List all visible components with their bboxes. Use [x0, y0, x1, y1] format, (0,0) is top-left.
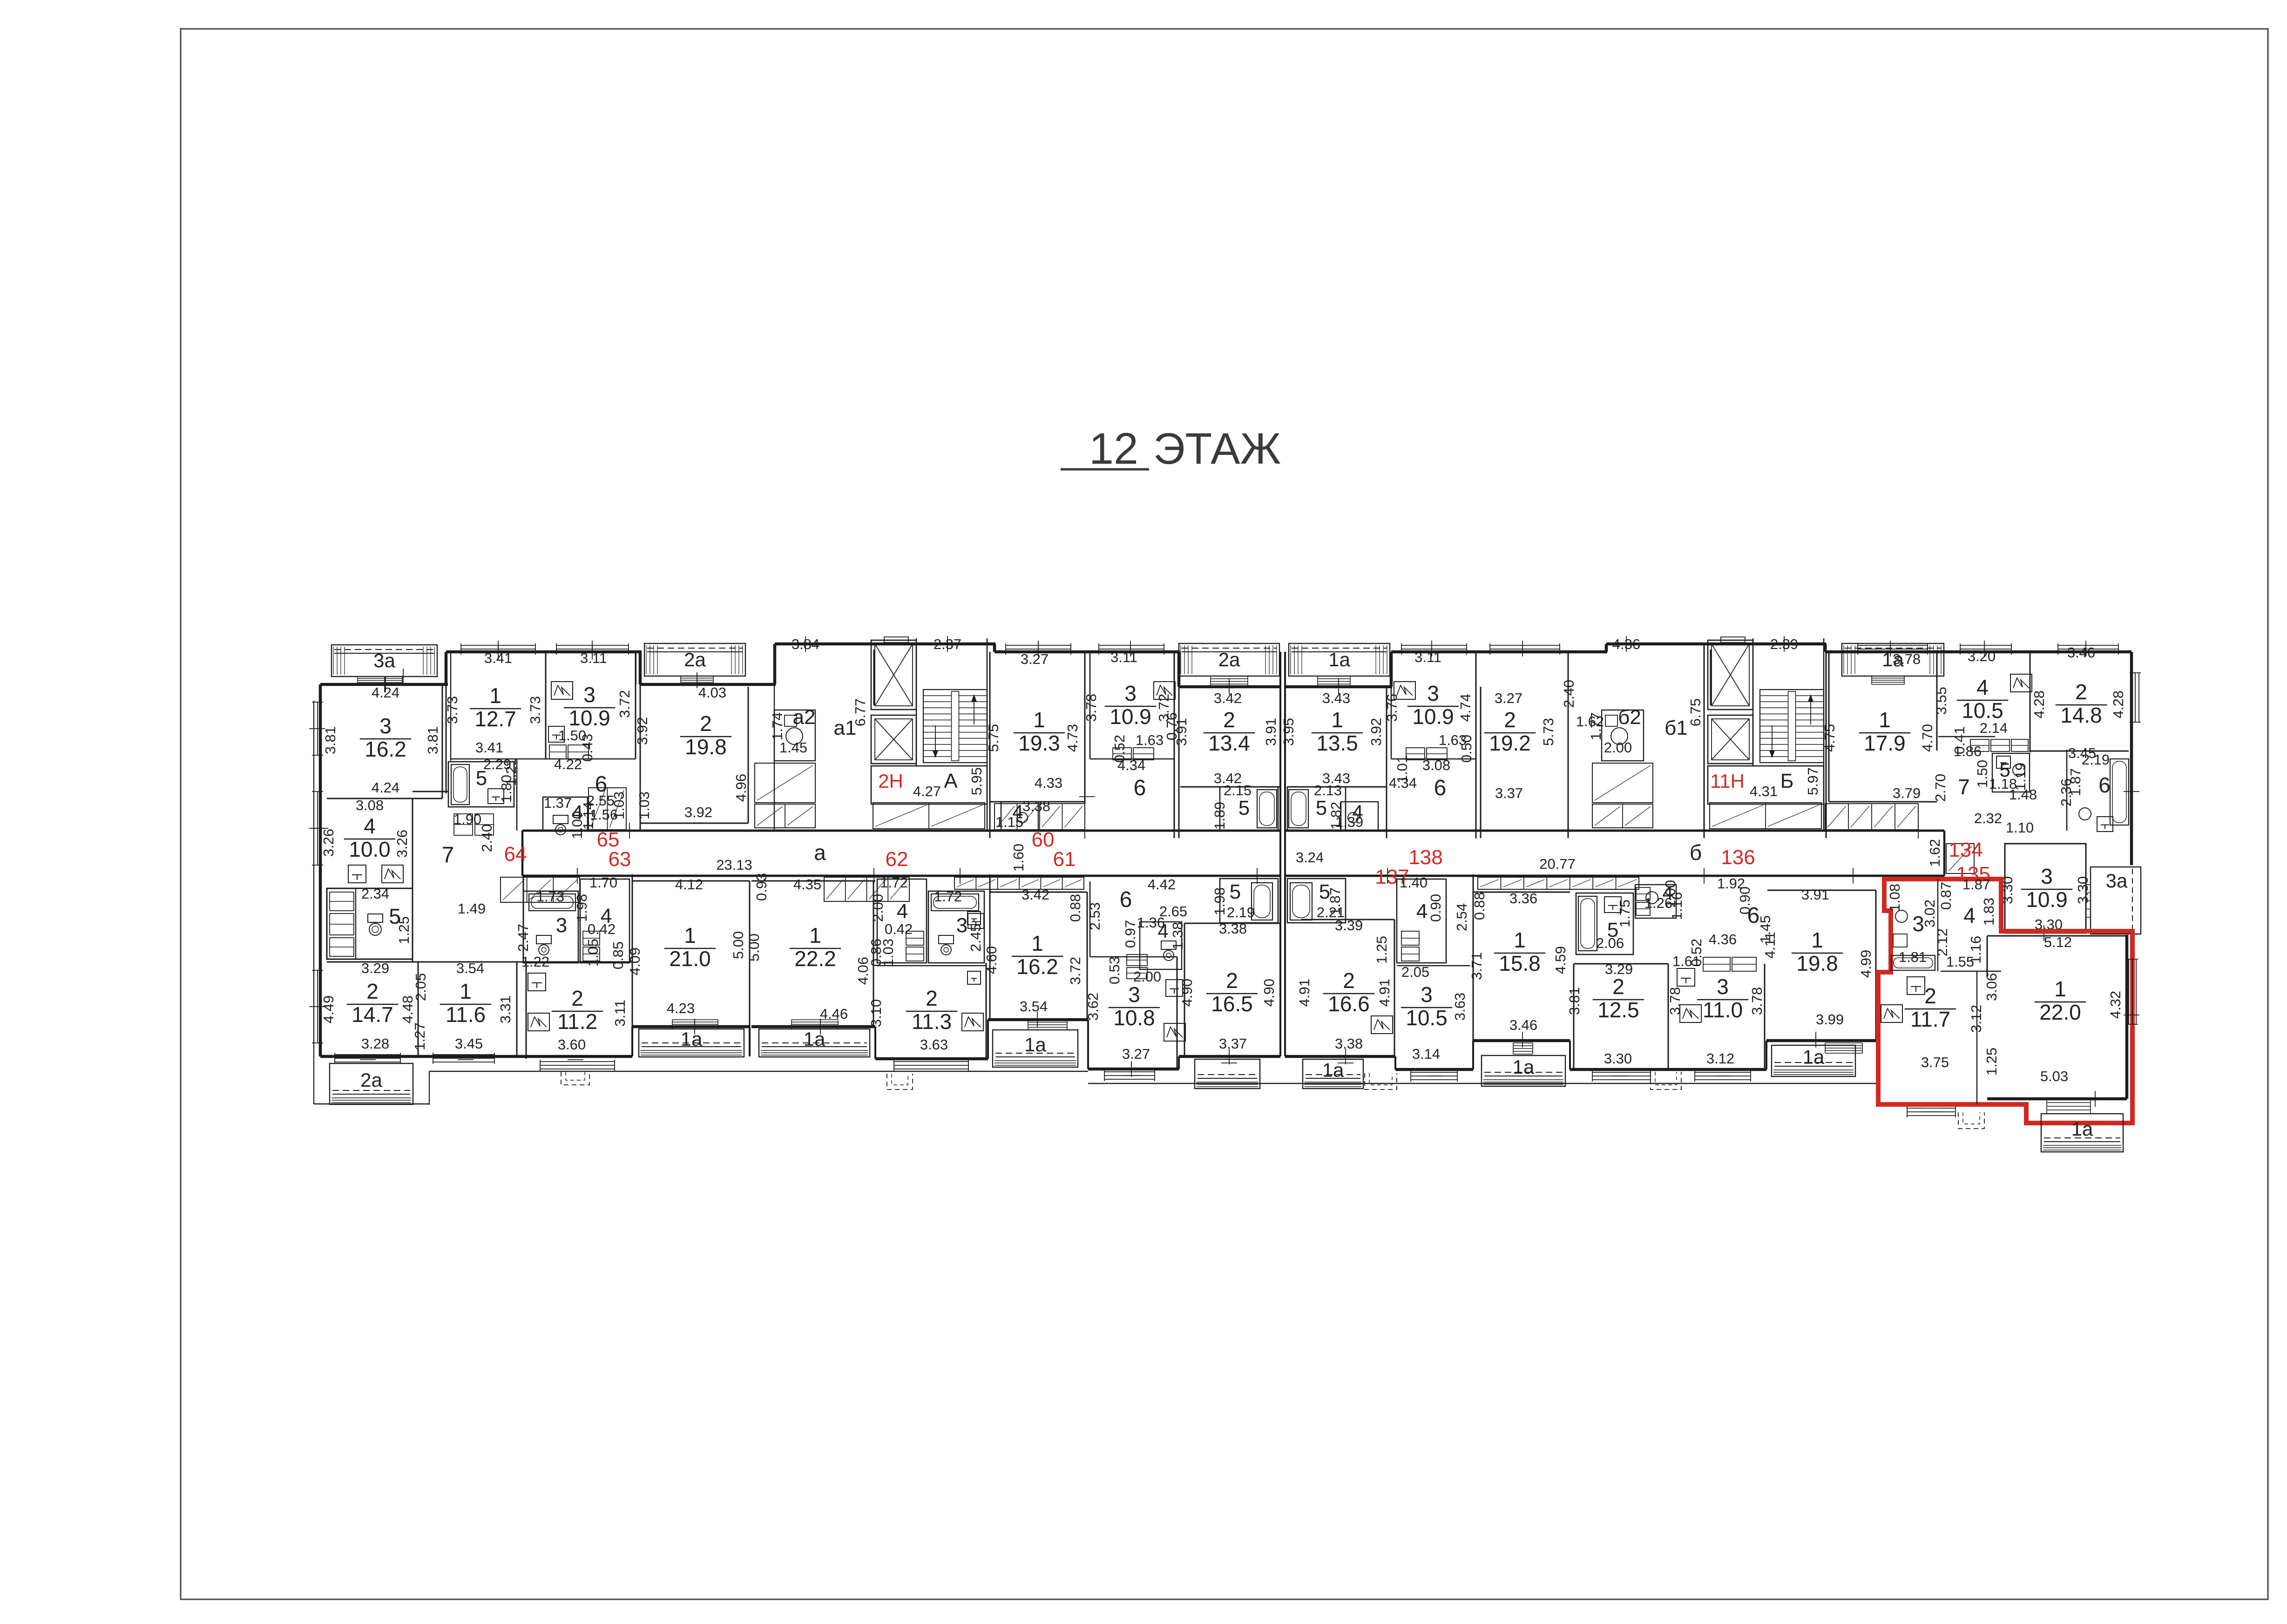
svg-text:19.8: 19.8	[685, 735, 727, 759]
svg-text:10.0: 10.0	[349, 837, 391, 861]
svg-text:1.05: 1.05	[585, 939, 601, 967]
svg-text:5.03: 5.03	[2040, 1068, 2068, 1084]
svg-text:1: 1	[1514, 928, 1526, 952]
svg-text:12: 12	[1089, 424, 1138, 474]
svg-text:1.19: 1.19	[2012, 763, 2029, 791]
svg-text:3.42: 3.42	[1214, 690, 1242, 706]
svg-text:1.72: 1.72	[880, 874, 908, 891]
svg-text:3.11: 3.11	[612, 1000, 628, 1027]
svg-text:4.27: 4.27	[913, 783, 941, 799]
svg-text:1.63: 1.63	[1136, 732, 1164, 748]
svg-text:16.6: 16.6	[1328, 992, 1370, 1016]
svg-text:а: а	[814, 840, 826, 865]
svg-text:14.8: 14.8	[2060, 703, 2102, 727]
svg-text:3.54: 3.54	[1020, 998, 1048, 1015]
svg-text:5.95: 5.95	[968, 767, 985, 795]
svg-text:7: 7	[442, 843, 454, 867]
svg-text:10.9: 10.9	[568, 706, 610, 730]
svg-text:1.27: 1.27	[412, 1022, 428, 1050]
svg-text:3: 3	[1427, 681, 1439, 705]
svg-text:1.45: 1.45	[779, 739, 807, 756]
svg-text:3.45: 3.45	[2068, 745, 2096, 761]
svg-text:14.7: 14.7	[352, 1002, 393, 1027]
svg-text:0.88: 0.88	[1471, 892, 1488, 920]
svg-text:1.87: 1.87	[1962, 876, 1990, 893]
svg-text:1.03: 1.03	[611, 792, 627, 819]
svg-text:19.3: 19.3	[1018, 731, 1060, 755]
svg-text:11.7: 11.7	[1910, 1007, 1950, 1031]
svg-text:4.32: 4.32	[2107, 991, 2124, 1019]
svg-text:10.5: 10.5	[1406, 1006, 1448, 1030]
svg-text:А: А	[944, 770, 958, 792]
svg-text:3.78: 3.78	[1083, 694, 1099, 722]
svg-text:1.72: 1.72	[934, 888, 962, 905]
svg-text:1а: 1а	[1328, 649, 1350, 670]
svg-text:3.39: 3.39	[1335, 917, 1363, 934]
svg-text:0.52: 0.52	[1688, 939, 1705, 967]
svg-text:1а: 1а	[2071, 1118, 2093, 1140]
svg-text:1.73: 1.73	[536, 888, 564, 905]
svg-text:3.63: 3.63	[920, 1036, 948, 1053]
svg-text:19.2: 19.2	[1489, 731, 1531, 755]
svg-text:2.15: 2.15	[1224, 782, 1252, 798]
svg-text:3.72: 3.72	[1067, 957, 1083, 985]
svg-text:3.27: 3.27	[1122, 1046, 1150, 1062]
svg-text:3.92: 3.92	[1368, 718, 1384, 746]
svg-text:4.49: 4.49	[320, 995, 337, 1023]
svg-text:4.22: 4.22	[554, 756, 582, 772]
svg-text:3.78: 3.78	[1893, 651, 1921, 667]
svg-text:3.78: 3.78	[1667, 987, 1683, 1015]
svg-text:6: 6	[1120, 887, 1132, 912]
svg-text:0.97: 0.97	[1122, 920, 1138, 948]
svg-text:62: 62	[886, 848, 908, 871]
svg-text:2.40: 2.40	[1561, 680, 1577, 708]
svg-text:3.11: 3.11	[1110, 649, 1137, 665]
svg-text:2: 2	[1343, 968, 1355, 993]
svg-text:11.6: 11.6	[446, 1002, 486, 1027]
svg-text:63: 63	[609, 848, 631, 871]
svg-text:3.30: 3.30	[2075, 876, 2091, 904]
svg-text:5.00: 5.00	[730, 931, 746, 959]
svg-text:5: 5	[1238, 797, 1250, 819]
svg-text:3.11: 3.11	[1414, 649, 1441, 665]
svg-text:138: 138	[1408, 846, 1442, 869]
svg-text:2: 2	[571, 986, 583, 1010]
svg-text:16.5: 16.5	[1211, 992, 1253, 1016]
svg-text:2.54: 2.54	[1454, 903, 1470, 931]
svg-text:3.26: 3.26	[394, 830, 410, 858]
svg-text:3.60: 3.60	[558, 1036, 586, 1053]
svg-text:4.23: 4.23	[667, 1000, 695, 1016]
svg-text:3.02: 3.02	[1922, 900, 1938, 927]
svg-text:2.00: 2.00	[870, 894, 886, 922]
svg-text:0.87: 0.87	[1938, 882, 1954, 910]
svg-text:1: 1	[489, 683, 501, 708]
svg-text:1.10: 1.10	[2006, 819, 2034, 836]
svg-text:20.77: 20.77	[1539, 856, 1576, 872]
svg-text:б: б	[1690, 840, 1702, 865]
svg-text:3.29: 3.29	[361, 960, 389, 976]
svg-text:1.03: 1.03	[636, 792, 652, 819]
svg-text:5.97: 5.97	[1805, 767, 1821, 795]
svg-text:2Н: 2Н	[878, 770, 903, 792]
svg-text:3.81: 3.81	[322, 726, 338, 754]
svg-text:3: 3	[1128, 982, 1140, 1007]
svg-text:1.75: 1.75	[1617, 900, 1633, 927]
svg-text:4.74: 4.74	[1457, 694, 1474, 722]
svg-text:1.98: 1.98	[1211, 887, 1228, 915]
svg-text:3.91: 3.91	[1173, 718, 1190, 746]
svg-text:17.9: 17.9	[1864, 731, 1906, 755]
svg-text:3.92: 3.92	[634, 717, 650, 745]
svg-text:6: 6	[2098, 773, 2111, 797]
svg-text:3: 3	[1421, 982, 1433, 1007]
svg-text:4.28: 4.28	[2110, 690, 2126, 718]
svg-text:4: 4	[1416, 900, 1428, 923]
svg-text:3.26: 3.26	[320, 829, 337, 857]
svg-text:11Н: 11Н	[1710, 770, 1745, 792]
svg-text:б2: б2	[1618, 706, 1641, 729]
svg-text:3.30: 3.30	[1604, 1050, 1632, 1067]
svg-text:1: 1	[1031, 931, 1043, 955]
svg-text:3.42: 3.42	[1022, 886, 1049, 903]
svg-text:22.2: 22.2	[794, 947, 836, 971]
svg-text:3.71: 3.71	[1468, 952, 1485, 980]
svg-text:3.45: 3.45	[455, 1035, 483, 1052]
svg-text:4.42: 4.42	[1148, 876, 1176, 893]
svg-text:2: 2	[1924, 984, 1936, 1008]
svg-text:3.38: 3.38	[1335, 1035, 1363, 1052]
svg-text:4.03: 4.03	[698, 684, 726, 701]
svg-text:3.79: 3.79	[1893, 785, 1921, 801]
svg-text:3.36: 3.36	[1509, 890, 1537, 907]
svg-text:3.37: 3.37	[1219, 1035, 1247, 1052]
svg-text:1.60: 1.60	[1010, 844, 1027, 872]
svg-text:10.5: 10.5	[1962, 698, 2003, 723]
svg-text:16.2: 16.2	[1016, 954, 1058, 979]
svg-text:15.8: 15.8	[1499, 951, 1541, 975]
svg-text:3: 3	[379, 714, 392, 738]
svg-text:1.25: 1.25	[396, 916, 412, 944]
svg-text:4.90: 4.90	[1179, 979, 1195, 1007]
svg-text:1: 1	[684, 923, 696, 947]
svg-text:0.50: 0.50	[1458, 735, 1475, 763]
svg-text:13.5: 13.5	[1316, 731, 1358, 755]
svg-text:3.27: 3.27	[1495, 690, 1522, 706]
svg-text:2: 2	[1612, 974, 1624, 999]
svg-text:2.12: 2.12	[1934, 928, 1950, 956]
svg-text:б1: б1	[1665, 717, 1688, 739]
svg-text:3.12: 3.12	[1706, 1050, 1734, 1067]
svg-text:3.78: 3.78	[1749, 987, 1765, 1015]
svg-text:3.37: 3.37	[1495, 785, 1523, 801]
svg-text:4.60: 4.60	[983, 946, 1000, 974]
svg-text:3.72: 3.72	[616, 690, 633, 718]
svg-text:1: 1	[1033, 708, 1045, 732]
svg-text:0.42: 0.42	[885, 921, 913, 937]
svg-text:3.38: 3.38	[1022, 798, 1050, 814]
svg-text:0.86: 0.86	[868, 939, 884, 967]
svg-text:Б: Б	[1780, 770, 1794, 792]
svg-text:3.73: 3.73	[444, 696, 460, 724]
svg-text:4.59: 4.59	[1552, 946, 1569, 974]
svg-text:0.90: 0.90	[1428, 894, 1444, 922]
svg-text:0.85: 0.85	[610, 941, 626, 969]
svg-text:3.63: 3.63	[1452, 993, 1468, 1021]
svg-text:4.11: 4.11	[1762, 932, 1778, 959]
svg-text:5: 5	[1230, 880, 1241, 903]
svg-text:2: 2	[2075, 680, 2087, 704]
svg-text:2.14: 2.14	[1980, 720, 2008, 736]
svg-text:3.95: 3.95	[1280, 718, 1297, 746]
svg-text:3.29: 3.29	[1605, 961, 1633, 977]
svg-text:3.55: 3.55	[1933, 687, 1949, 715]
svg-text:64: 64	[504, 843, 527, 866]
svg-text:1.22: 1.22	[521, 954, 549, 970]
svg-text:1.81: 1.81	[1899, 949, 1927, 965]
svg-text:10.8: 10.8	[1113, 1006, 1155, 1030]
svg-text:1: 1	[809, 923, 821, 947]
svg-text:3.62: 3.62	[1085, 993, 1101, 1021]
svg-text:5.12: 5.12	[2044, 934, 2072, 950]
svg-text:2.40: 2.40	[479, 824, 495, 852]
svg-text:1.49: 1.49	[458, 900, 486, 917]
svg-text:4.33: 4.33	[1035, 775, 1062, 791]
svg-text:4.24: 4.24	[372, 779, 399, 796]
svg-text:3.91: 3.91	[1801, 886, 1829, 903]
svg-text:2.53: 2.53	[1087, 902, 1103, 930]
svg-text:3.91: 3.91	[1263, 718, 1279, 746]
svg-text:3: 3	[1717, 974, 1729, 999]
svg-text:1.87: 1.87	[1327, 887, 1343, 915]
svg-text:3: 3	[2041, 864, 2053, 888]
svg-text:2: 2	[1226, 968, 1238, 993]
svg-text:3.41: 3.41	[475, 739, 503, 756]
svg-text:3.27: 3.27	[1021, 651, 1049, 667]
svg-text:1.38: 1.38	[1170, 922, 1186, 950]
svg-text:1: 1	[1879, 708, 1891, 732]
svg-text:4.91: 4.91	[1376, 979, 1393, 1007]
svg-text:2.70: 2.70	[1932, 774, 1949, 802]
svg-text:2: 2	[1504, 708, 1516, 732]
svg-text:1а: 1а	[681, 1028, 703, 1050]
svg-text:1.50: 1.50	[1974, 760, 1990, 788]
svg-text:60: 60	[1032, 828, 1055, 851]
svg-text:1.74: 1.74	[769, 712, 785, 740]
svg-text:3.76: 3.76	[1384, 694, 1400, 722]
svg-text:3.28: 3.28	[361, 1035, 389, 1052]
svg-text:0.93: 0.93	[753, 873, 770, 901]
svg-text:6: 6	[1134, 776, 1146, 800]
svg-text:3: 3	[556, 914, 567, 937]
svg-text:1.55: 1.55	[1946, 954, 1974, 970]
svg-text:10.9: 10.9	[1110, 704, 1151, 729]
svg-text:4.91: 4.91	[1296, 979, 1313, 1007]
svg-text:4: 4	[364, 814, 376, 838]
svg-text:1: 1	[460, 979, 472, 1003]
svg-text:11.0: 11.0	[1703, 998, 1743, 1022]
svg-text:3.08: 3.08	[1422, 757, 1450, 773]
svg-text:1а: 1а	[804, 1028, 825, 1050]
svg-text:0.88: 0.88	[1067, 894, 1083, 922]
svg-text:4.36: 4.36	[1709, 931, 1737, 947]
svg-text:13.4: 13.4	[1208, 731, 1250, 755]
svg-text:1.37: 1.37	[544, 795, 572, 811]
svg-text:5.75: 5.75	[985, 724, 1001, 752]
svg-text:2.00: 2.00	[1604, 739, 1632, 756]
svg-text:2: 2	[700, 711, 712, 736]
svg-text:3.20: 3.20	[1968, 648, 1996, 664]
svg-text:3.43: 3.43	[1322, 770, 1350, 786]
svg-text:4.28: 4.28	[2031, 690, 2047, 718]
svg-text:ЭТАЖ: ЭТАЖ	[1153, 424, 1281, 474]
svg-text:3.92: 3.92	[684, 804, 712, 820]
svg-text:3.81: 3.81	[1566, 987, 1583, 1015]
svg-text:4.96: 4.96	[733, 774, 749, 802]
svg-text:2.36: 2.36	[2058, 778, 2074, 806]
svg-text:2а: 2а	[360, 1069, 382, 1091]
svg-text:4: 4	[1976, 675, 1989, 699]
svg-text:3.75: 3.75	[1921, 1054, 1949, 1070]
svg-text:2: 2	[1223, 708, 1235, 732]
svg-text:2.47: 2.47	[515, 924, 531, 952]
svg-text:3.46: 3.46	[1509, 1017, 1537, 1033]
svg-text:1.40: 1.40	[1400, 874, 1428, 891]
svg-text:5.73: 5.73	[1540, 718, 1556, 746]
svg-text:1.08: 1.08	[1887, 884, 1903, 912]
svg-text:4.73: 4.73	[1064, 724, 1081, 752]
svg-text:1.83: 1.83	[1981, 898, 1997, 926]
svg-text:7: 7	[1958, 775, 1970, 799]
svg-text:1.70: 1.70	[589, 874, 617, 891]
svg-text:61: 61	[1053, 848, 1076, 871]
svg-text:1.39: 1.39	[1335, 814, 1363, 830]
svg-text:19.8: 19.8	[1796, 951, 1838, 975]
svg-text:134: 134	[1949, 839, 1983, 861]
svg-text:3.31: 3.31	[497, 995, 514, 1023]
svg-text:а2: а2	[793, 706, 816, 729]
svg-text:1.62: 1.62	[1927, 839, 1943, 867]
svg-text:1: 1	[1331, 708, 1343, 732]
svg-text:2.19: 2.19	[1227, 904, 1255, 920]
svg-text:3: 3	[956, 914, 968, 937]
svg-text:136: 136	[1721, 846, 1755, 869]
svg-text:2.05: 2.05	[413, 973, 429, 1001]
svg-text:5.00: 5.00	[746, 934, 762, 961]
svg-text:4.90: 4.90	[1261, 979, 1277, 1007]
svg-text:2.06: 2.06	[1596, 935, 1624, 951]
svg-text:3: 3	[583, 683, 595, 707]
svg-text:2.45: 2.45	[968, 924, 984, 952]
svg-text:4.99: 4.99	[1858, 950, 1874, 978]
svg-text:3.81: 3.81	[425, 726, 441, 754]
svg-text:3.24: 3.24	[1296, 849, 1324, 866]
svg-text:12.5: 12.5	[1597, 998, 1639, 1022]
svg-text:4.75: 4.75	[1821, 724, 1838, 752]
svg-text:6.77: 6.77	[852, 698, 868, 726]
svg-text:3.12: 3.12	[1968, 1005, 1984, 1033]
svg-text:1а: 1а	[1513, 1056, 1535, 1078]
svg-text:3.43: 3.43	[1322, 690, 1350, 706]
svg-text:3.08: 3.08	[356, 797, 384, 813]
svg-text:1а: 1а	[1024, 1034, 1046, 1056]
svg-text:0.90: 0.90	[1737, 886, 1753, 914]
svg-text:3: 3	[1124, 681, 1137, 705]
svg-text:4.35: 4.35	[793, 876, 821, 893]
svg-text:3а: 3а	[2106, 870, 2128, 892]
svg-text:10.9: 10.9	[1412, 704, 1454, 729]
svg-text:1.16: 1.16	[1669, 892, 1685, 920]
svg-text:3.06: 3.06	[1983, 973, 2000, 1001]
svg-text:1.98: 1.98	[574, 894, 590, 922]
svg-text:5: 5	[1316, 797, 1327, 819]
svg-text:0.53: 0.53	[1106, 956, 1123, 984]
svg-text:4: 4	[1963, 903, 1976, 927]
svg-text:0.42: 0.42	[588, 921, 616, 937]
svg-text:1.89: 1.89	[1211, 802, 1228, 830]
svg-text:10.9: 10.9	[2026, 887, 2068, 912]
svg-text:2: 2	[926, 986, 938, 1010]
svg-text:1: 1	[1811, 928, 1823, 952]
svg-text:1.25: 1.25	[1374, 936, 1390, 964]
svg-text:2.34: 2.34	[361, 886, 389, 902]
svg-text:1.86: 1.86	[1954, 743, 1982, 759]
svg-text:4.31: 4.31	[1750, 783, 1778, 799]
svg-text:4.70: 4.70	[1919, 724, 1935, 752]
svg-text:2а: 2а	[684, 649, 706, 670]
svg-text:2: 2	[366, 979, 379, 1003]
svg-text:11.3: 11.3	[912, 1009, 952, 1034]
svg-text:4.34: 4.34	[1117, 757, 1145, 773]
svg-text:1: 1	[2054, 977, 2066, 1001]
svg-text:3.73: 3.73	[527, 696, 543, 724]
svg-text:11.2: 11.2	[557, 1009, 597, 1034]
svg-text:3.10: 3.10	[868, 999, 884, 1027]
svg-text:3.54: 3.54	[456, 960, 484, 976]
svg-text:4: 4	[897, 900, 908, 923]
svg-text:3.99: 3.99	[1816, 1011, 1844, 1028]
svg-text:21.0: 21.0	[669, 947, 711, 971]
svg-text:1.62: 1.62	[1576, 713, 1604, 730]
svg-text:22.0: 22.0	[2039, 1000, 2081, 1024]
svg-text:1а: 1а	[1322, 1059, 1344, 1081]
svg-text:23.13: 23.13	[716, 857, 752, 873]
svg-text:1.25: 1.25	[1983, 1048, 2000, 1076]
svg-text:1а: 1а	[1803, 1046, 1825, 1068]
svg-text:16.2: 16.2	[365, 737, 406, 761]
svg-text:2а: 2а	[1218, 649, 1240, 670]
svg-text:6: 6	[1434, 776, 1447, 800]
svg-text:4.12: 4.12	[675, 876, 703, 893]
svg-text:3.14: 3.14	[1412, 1046, 1440, 1062]
svg-text:12.7: 12.7	[474, 707, 516, 731]
svg-text:6.75: 6.75	[1687, 698, 1704, 726]
svg-text:2.32: 2.32	[1974, 810, 2002, 826]
svg-text:4.34: 4.34	[1389, 775, 1417, 791]
svg-text:1.36: 1.36	[1137, 914, 1165, 931]
svg-text:3а: 3а	[373, 650, 395, 671]
